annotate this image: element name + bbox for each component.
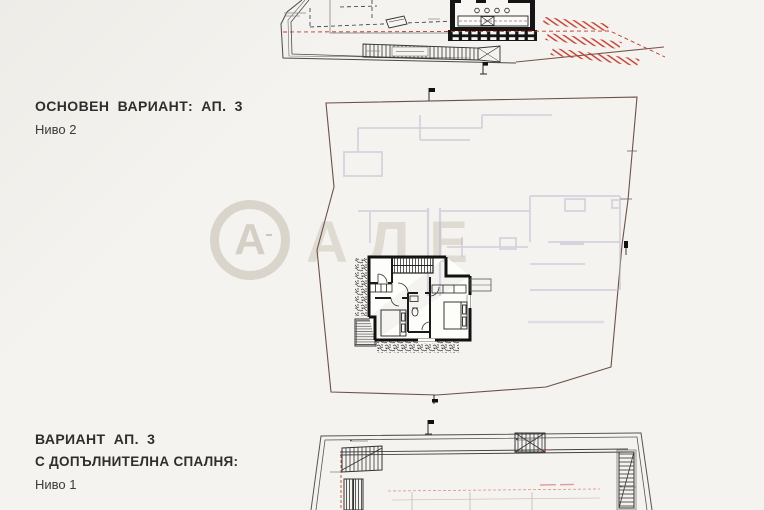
stair-center bbox=[515, 433, 545, 452]
stair-strip bbox=[363, 44, 500, 62]
apartment-plan bbox=[355, 257, 491, 353]
red-hatch-band bbox=[545, 33, 622, 49]
property-boundary bbox=[317, 97, 637, 395]
survey-flag-icon bbox=[480, 62, 488, 74]
stair-left bbox=[342, 446, 382, 472]
stair-right bbox=[617, 450, 636, 510]
plan-subtitle: Ниво 1 bbox=[35, 477, 238, 492]
level2-plan bbox=[281, 0, 665, 74]
stairs bbox=[392, 258, 433, 273]
red-guides bbox=[388, 450, 600, 491]
plan-title-line2: С ДОПЪЛНИТЕЛНА СПАЛНЯ: bbox=[35, 454, 238, 469]
section-label-level1: ВАРИАНТ АП. 3 С ДОПЪЛНИТЕЛНА СПАЛНЯ: Нив… bbox=[35, 431, 238, 492]
plan-title: ОСНОВЕН ВАРИАНТ: АП. 3 bbox=[35, 98, 243, 114]
section-label-level2: ОСНОВЕН ВАРИАНТ: АП. 3 Ниво 2 bbox=[35, 98, 243, 137]
stair-lower-left bbox=[344, 479, 363, 510]
survey-flag-icon bbox=[426, 88, 435, 101]
vegetation-strip bbox=[355, 258, 367, 316]
site-plan bbox=[266, 88, 637, 404]
plan-subtitle: Ниво 2 bbox=[35, 122, 243, 137]
roof-dashed-lines bbox=[310, 0, 455, 33]
kitchen-block bbox=[448, 0, 537, 41]
inner-wall bbox=[340, 449, 628, 455]
plan-title: ВАРИАНТ АП. 3 bbox=[35, 431, 238, 447]
red-hatch-band bbox=[542, 17, 610, 31]
faint-grid bbox=[392, 492, 600, 510]
survey-flag-icon bbox=[425, 420, 434, 434]
level1-plan bbox=[311, 420, 652, 510]
scanned-floorplan-page: А АЛЕ bbox=[0, 0, 764, 510]
